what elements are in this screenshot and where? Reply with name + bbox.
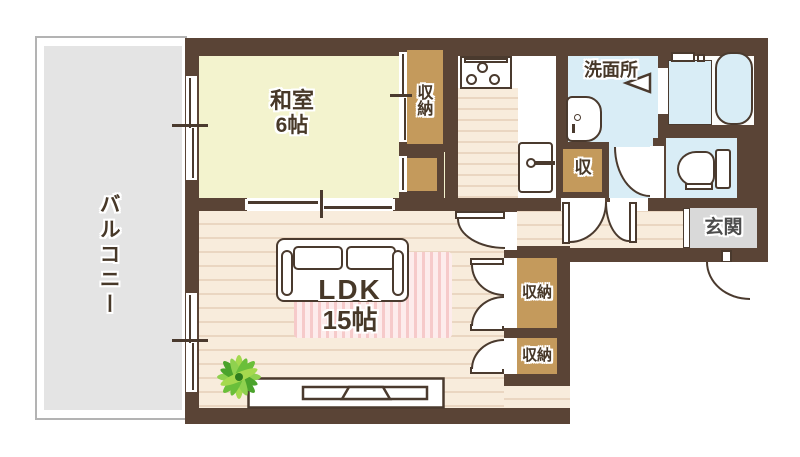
slider-pane [248,201,318,204]
slider-pane [324,206,392,209]
opening-toilet-door [650,146,664,198]
toilet-bowl-icon [677,151,715,187]
washbasin-icon [566,96,602,142]
hall-storage-label: 収 [564,158,602,178]
ldk-label: LDK [288,274,412,306]
shower-area [668,60,712,125]
balcony-label: バルコニー [96,150,120,360]
wall-japanese-south-right [393,198,458,211]
washroom-door-leaf [629,202,637,243]
slider-tick [320,190,323,218]
bath-counter [671,52,695,62]
ldk-size: 15帖 [288,306,412,336]
storage-upper-leaf-a [470,258,504,265]
opening-ldk-door [504,212,517,250]
wall-toilet-right [737,138,754,198]
floorplan: バルコニー 和室 6帖 LDK 15帖 洗面所 収納 収 収納 収納 玄関 [0,0,800,457]
entrance-step [683,208,690,248]
front-door-arc [706,262,750,300]
window-pane [189,78,191,128]
wall-storage-mid [504,328,570,338]
window-pane [192,128,194,178]
window-tick [172,124,208,127]
washbasin-tap [572,124,575,133]
closet-slider-pane [404,98,406,140]
toilet-base [685,183,713,190]
window-pane [192,343,194,390]
stove-burner [477,62,488,73]
window-pane [189,295,191,343]
closet-small-slider-pane [402,158,404,190]
toilet-tank [715,149,731,189]
hall-storage-leaf [562,202,570,244]
tv-board-icon [247,377,445,409]
stove-grill [464,58,508,63]
ldk-storage-upper-label: 収納 [508,284,566,301]
closet-japanese-label: 収納 [413,70,431,130]
stove-burner [466,74,477,85]
wall-bottom-ldk [185,408,570,424]
sofa-cushion [346,246,396,270]
closet-slider-pane [402,54,404,96]
ldk-floor-corner [504,386,570,408]
plant-icon [212,350,266,404]
ldk-door-leaf [455,211,505,219]
kitchen-sink-icon [518,142,553,193]
wall-bath-toilet [658,125,768,138]
ldk-storage-lower-label: 収納 [508,347,566,364]
wall-storage-bottom [504,374,570,386]
entrance-label: 玄関 [690,217,757,239]
washroom-label: 洗面所 [563,60,659,81]
window-tick [172,339,208,342]
japanese-room-label: 和室 [242,88,342,113]
bath-tap [697,54,705,62]
washbasin-drain [574,114,581,121]
sofa-cushion [293,246,343,270]
closet-small-fill [407,158,437,191]
bathtub-icon [715,52,753,125]
kitchen-counter [458,88,518,198]
stove-burner [489,74,500,85]
faucet-stem [534,161,555,165]
japanese-room-size: 6帖 [242,114,342,138]
closet-slider-tick [390,94,412,97]
wall-japanese-south-left [185,198,247,211]
